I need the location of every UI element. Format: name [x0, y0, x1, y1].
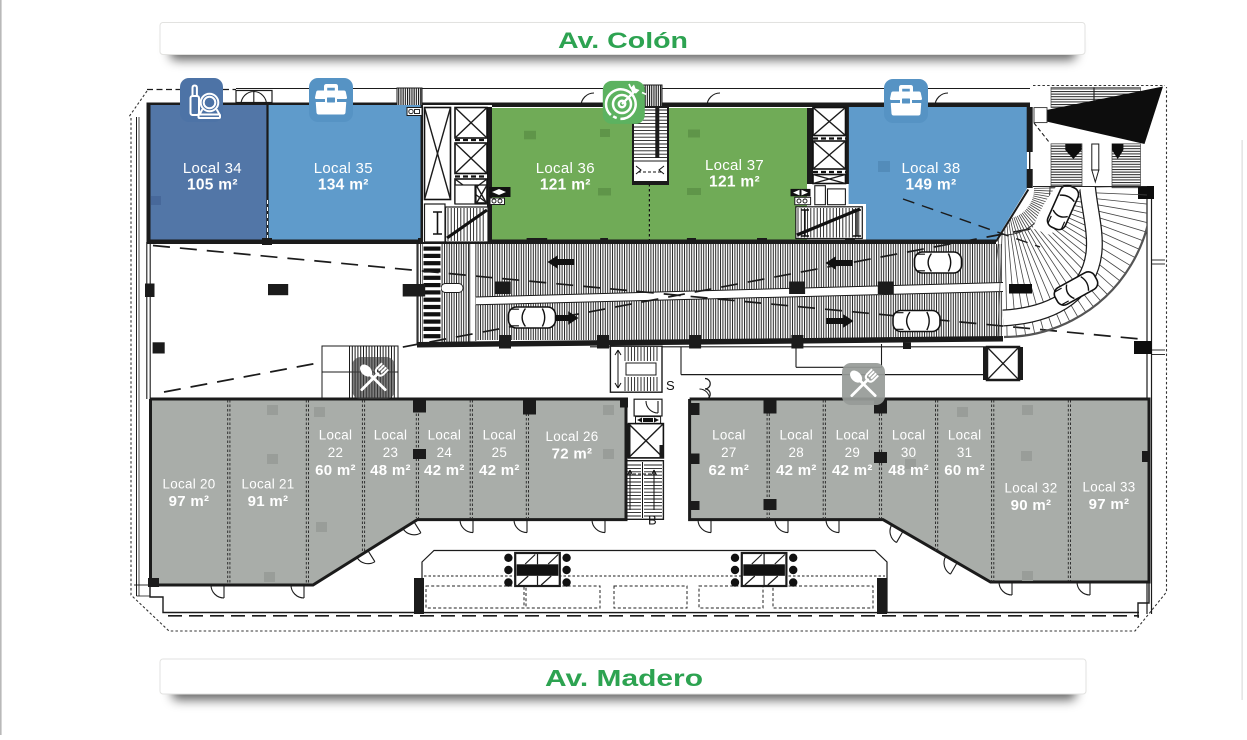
svg-text:Local 26: Local 26 [545, 429, 598, 444]
svg-text:Local 32: Local 32 [1004, 481, 1057, 496]
svg-text:Local 20: Local 20 [162, 477, 215, 492]
svg-text:Local 34: Local 34 [183, 160, 242, 177]
svg-text:Local: Local [374, 428, 408, 443]
svg-text:121 m²: 121 m² [709, 174, 760, 191]
svg-text:23: 23 [383, 445, 399, 460]
svg-text:62 m²: 62 m² [709, 462, 750, 479]
svg-text:Av. Madero: Av. Madero [545, 665, 703, 691]
svg-text:42 m²: 42 m² [832, 462, 873, 479]
svg-text:42 m²: 42 m² [776, 462, 817, 479]
svg-text:Local: Local [836, 428, 870, 443]
svg-text:97 m²: 97 m² [169, 493, 210, 510]
svg-text:24: 24 [437, 445, 453, 460]
svg-text:Local: Local [948, 428, 982, 443]
svg-text:Local 33: Local 33 [1082, 480, 1135, 495]
svg-text:Local 37: Local 37 [705, 157, 764, 174]
svg-text:134 m²: 134 m² [318, 177, 369, 194]
svg-text:48 m²: 48 m² [370, 462, 411, 479]
svg-text:105 m²: 105 m² [187, 177, 238, 194]
svg-text:Local 38: Local 38 [901, 160, 960, 177]
svg-text:48 m²: 48 m² [888, 462, 929, 479]
svg-text:Local: Local [428, 428, 462, 443]
svg-text:42 m²: 42 m² [424, 462, 465, 479]
svg-text:30: 30 [901, 445, 917, 460]
svg-text:27: 27 [721, 445, 737, 460]
svg-text:Local: Local [319, 428, 353, 443]
svg-text:149 m²: 149 m² [906, 177, 957, 194]
svg-text:97 m²: 97 m² [1089, 496, 1130, 513]
svg-text:Local: Local [712, 428, 746, 443]
svg-text:60 m²: 60 m² [944, 462, 985, 479]
svg-text:Local 21: Local 21 [241, 477, 294, 492]
svg-text:42 m²: 42 m² [479, 462, 520, 479]
svg-text:25: 25 [492, 445, 508, 460]
svg-text:S: S [666, 378, 675, 393]
svg-text:90 m²: 90 m² [1011, 497, 1052, 514]
svg-text:Local: Local [483, 428, 517, 443]
svg-text:B: B [648, 513, 657, 528]
svg-text:91 m²: 91 m² [248, 493, 289, 510]
svg-text:121 m²: 121 m² [540, 177, 591, 194]
svg-text:29: 29 [845, 445, 861, 460]
svg-text:Av. Colón: Av. Colón [558, 28, 688, 53]
svg-text:28: 28 [789, 445, 805, 460]
svg-text:60 m²: 60 m² [315, 462, 356, 479]
svg-text:72 m²: 72 m² [552, 446, 593, 463]
svg-text:Local 36: Local 36 [536, 160, 595, 177]
svg-text:22: 22 [328, 445, 344, 460]
svg-text:Local 35: Local 35 [314, 160, 373, 177]
svg-text:Local: Local [780, 428, 814, 443]
svg-text:31: 31 [957, 445, 973, 460]
svg-text:Local: Local [892, 428, 926, 443]
